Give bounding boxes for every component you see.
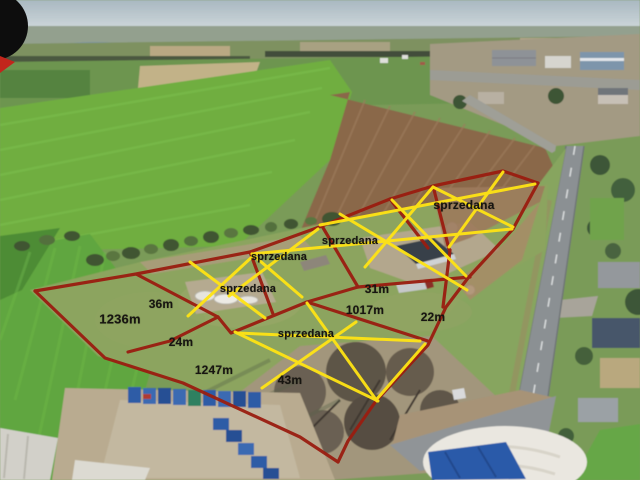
sky <box>0 0 640 30</box>
aerial-photo <box>0 0 640 480</box>
plot-dimension-label: 22m <box>421 310 446 324</box>
parked-car <box>452 388 466 400</box>
plot-dimension-label: 43m <box>278 373 303 387</box>
sold-plot-label: sprzedana <box>322 235 378 247</box>
sold-plot-label: sprzedana <box>433 198 494 212</box>
sold-plot-label: sprzedana <box>278 328 334 340</box>
plot-area-label: 1236m <box>99 312 140 327</box>
screenshot-root: sprzedana sprzedana sprzedana sprzedana … <box>0 0 640 480</box>
sold-plot-label: sprzedana <box>220 283 276 295</box>
photo-background <box>0 0 640 480</box>
plot-dimension-label: 24m <box>169 335 194 349</box>
plot-dimension-label: 36m <box>149 297 174 311</box>
plot-area-label: 1017m <box>346 303 384 317</box>
house-roof-dark <box>592 318 640 348</box>
warehouse-roof <box>598 262 640 288</box>
sold-plot-label: sprzedana <box>251 251 307 263</box>
plot-area-label: 1247m <box>195 363 233 377</box>
plot-dimension-label: 31m <box>365 282 390 296</box>
